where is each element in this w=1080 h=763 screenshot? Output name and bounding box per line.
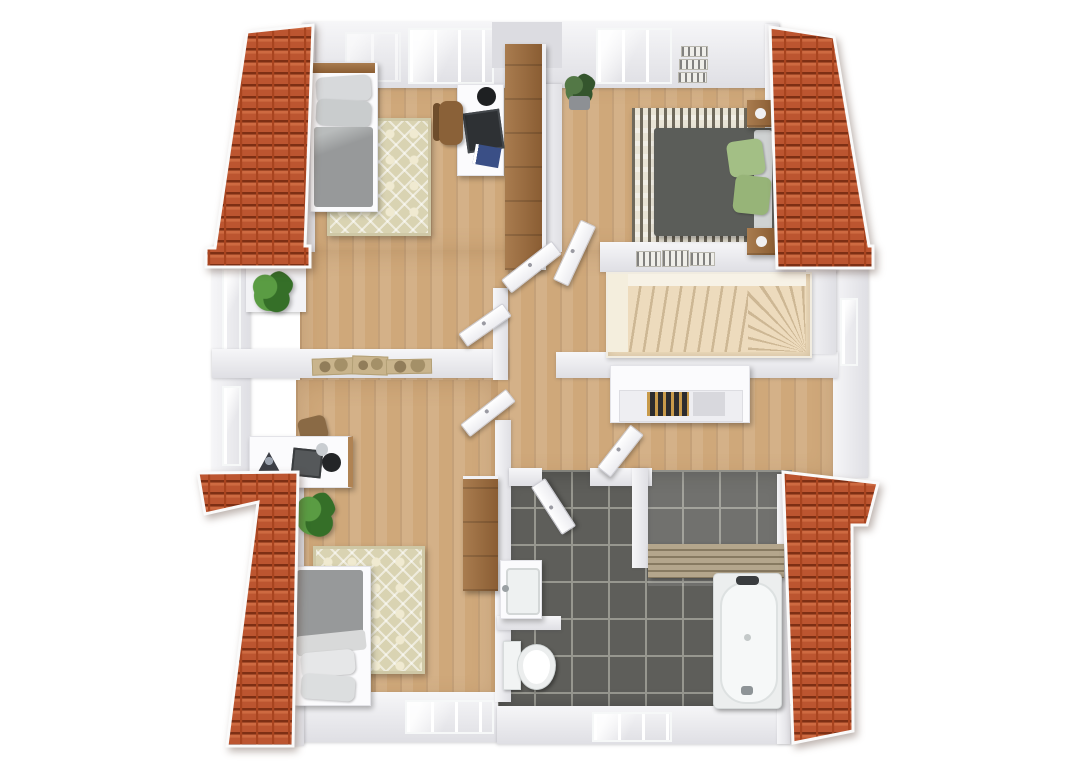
sideboard	[610, 365, 750, 423]
floor-plan-canvas	[0, 0, 1080, 763]
vanity-sink	[500, 560, 542, 619]
window-top-right	[596, 28, 672, 84]
bed-tr-pillow-green-1	[726, 138, 767, 179]
nightstand-vase-lower	[756, 236, 767, 247]
sink-basin	[506, 568, 540, 615]
bed-tl-headboard	[311, 63, 375, 73]
sink-faucet	[502, 585, 509, 592]
bed-top-left	[310, 62, 378, 212]
stair-frame-3	[690, 252, 715, 266]
wardrobe-bottom-left	[463, 476, 498, 591]
stair-frame-2	[662, 250, 689, 267]
window-top-left	[408, 28, 494, 84]
window-left-lower	[222, 386, 241, 466]
desk-bl-mouse	[316, 443, 328, 456]
wall-bath-stub	[632, 468, 648, 568]
wall-art-group	[312, 355, 432, 377]
desk-bottom-left	[249, 436, 353, 488]
chair-tl-seat	[439, 101, 463, 145]
staircase	[606, 272, 812, 358]
stair-wall-frames	[636, 248, 716, 268]
desk-tl-book	[472, 144, 501, 168]
nightstand-tr-upper	[747, 100, 774, 127]
plant-tr-pot	[569, 96, 590, 110]
wall-hall-short	[493, 288, 508, 380]
desk-chair-top-left	[433, 97, 463, 149]
roof-bottom-left	[198, 472, 298, 746]
bed-top-right	[654, 128, 776, 236]
bed-tr-pillow-green-2	[732, 174, 772, 216]
bathtub-tap	[741, 686, 753, 695]
window-bottom-left	[405, 700, 494, 734]
stair-side-landing	[608, 274, 628, 352]
nightstand-vase-upper	[755, 108, 766, 119]
stair-frame-1	[636, 251, 661, 267]
roof-top-right	[770, 27, 873, 268]
stair-straight-treads	[628, 286, 748, 352]
roof-top-left	[206, 25, 313, 267]
bathtub-drain	[744, 634, 751, 641]
desk-bl-headphones	[322, 453, 341, 472]
tr-picture-2	[679, 59, 708, 70]
desk-tl-speaker	[477, 87, 496, 106]
roof-bottom-right	[783, 472, 878, 743]
wall-art-2	[352, 355, 389, 375]
wardrobe-top-left	[505, 44, 546, 270]
bed-tl-blanket	[314, 127, 373, 207]
window-bottom-bath	[592, 712, 672, 742]
wall-art-1	[312, 357, 355, 375]
desk-bl-ornament	[258, 452, 280, 472]
window-left-upper	[222, 268, 241, 354]
plant-bedroom-bottom-left	[296, 490, 336, 540]
toilet-bowl	[517, 644, 556, 690]
sideboard-shelf-empty	[693, 392, 725, 416]
nightstand-tr-lower	[747, 228, 776, 255]
stair-winder-treads	[748, 286, 806, 352]
bed-tl-pillow-2	[315, 99, 371, 128]
bathtub-headrest	[736, 576, 759, 585]
window-right	[840, 298, 858, 366]
plant-bedroom-top-left	[251, 270, 295, 314]
bathtub	[713, 573, 782, 709]
bed-bottom-left	[293, 566, 371, 706]
wall-art-3	[386, 359, 432, 375]
tr-picture-3	[678, 72, 707, 83]
toilet	[503, 641, 555, 691]
bed-bl-pillow-2	[300, 673, 356, 702]
sideboard-shelf-books	[647, 392, 689, 416]
tr-picture-1	[681, 46, 708, 57]
desk-top-left	[457, 84, 504, 176]
bedroom-tr-wall-pictures	[678, 46, 710, 84]
